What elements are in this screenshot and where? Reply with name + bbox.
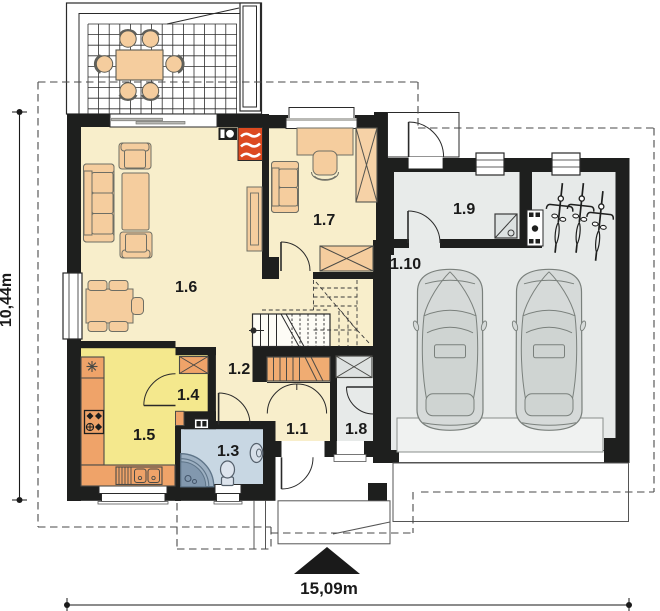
svg-text:1.7: 1.7 [313, 212, 335, 229]
svg-text:1.2: 1.2 [228, 361, 250, 378]
svg-text:10,44m: 10,44m [0, 273, 15, 327]
svg-text:1.9: 1.9 [453, 201, 475, 218]
svg-text:1.4: 1.4 [177, 387, 199, 404]
svg-text:1.10: 1.10 [390, 256, 421, 273]
svg-text:15,09m: 15,09m [300, 579, 358, 598]
svg-text:1.6: 1.6 [175, 279, 197, 296]
svg-text:1.8: 1.8 [345, 421, 367, 438]
svg-text:1.5: 1.5 [133, 427, 155, 444]
svg-text:1.1: 1.1 [286, 421, 308, 438]
svg-text:1.3: 1.3 [217, 443, 239, 460]
